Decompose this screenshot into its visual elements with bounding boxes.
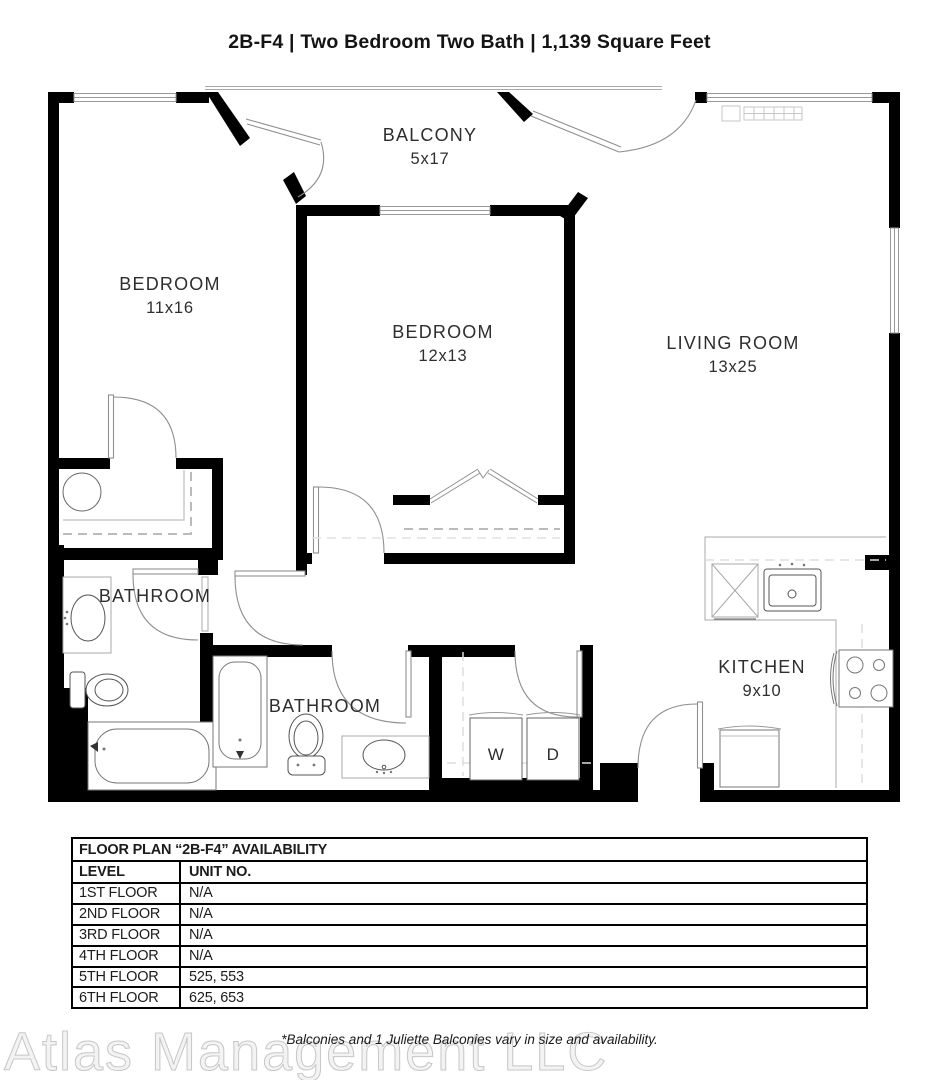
balcony-railing xyxy=(205,87,662,90)
washer-label: W xyxy=(488,745,505,764)
svg-text:BEDROOM: BEDROOM xyxy=(119,274,220,294)
availability-row: 4TH FLOOR N/A xyxy=(73,945,866,966)
svg-text:BALCONY: BALCONY xyxy=(383,125,477,145)
availability-row: 6TH FLOOR 625, 653 xyxy=(73,986,866,1007)
bathroom2-fixtures xyxy=(213,656,429,778)
bedroom2-door xyxy=(314,487,385,553)
window-living-top xyxy=(707,94,872,102)
balcony-door-right xyxy=(531,100,696,152)
entry-door xyxy=(638,702,703,768)
closet-door xyxy=(109,395,177,458)
svg-text:13x25: 13x25 xyxy=(709,358,758,376)
doors xyxy=(109,100,703,768)
window-bedroom1 xyxy=(74,94,176,102)
bathroom1-label: BATHROOM xyxy=(99,586,211,606)
unit-cell: N/A xyxy=(181,948,866,964)
column-header-unit: UNIT NO. xyxy=(181,864,866,880)
living-room-label: LIVING ROOM 13x25 xyxy=(666,333,799,376)
svg-text:KITCHEN: KITCHEN xyxy=(718,657,805,677)
watermark: Atlas Management LLC xyxy=(4,1021,608,1080)
window-living-right xyxy=(891,228,899,333)
availability-row: 5TH FLOOR 525, 553 xyxy=(73,966,866,987)
level-cell: 6TH FLOOR xyxy=(73,988,181,1007)
unit-cell: N/A xyxy=(181,906,866,922)
walk-in-closet xyxy=(63,470,196,534)
laundry-closet: W D xyxy=(447,652,597,780)
level-cell: 4TH FLOOR xyxy=(73,947,181,966)
availability-row: 3RD FLOOR N/A xyxy=(73,924,866,945)
level-cell: 1ST FLOOR xyxy=(73,884,181,903)
hall-door xyxy=(235,571,305,645)
floor-plan-page: 2B-F4 | Two Bedroom Two Bath | 1,139 Squ… xyxy=(0,0,939,1080)
toilet xyxy=(70,672,128,708)
balcony-door-left xyxy=(246,119,324,197)
level-cell: 5TH FLOOR xyxy=(73,968,181,987)
bathroom2-label: BATHROOM xyxy=(269,696,381,716)
refrigerator xyxy=(718,726,781,787)
svg-text:11x16: 11x16 xyxy=(146,299,194,317)
column-header-level: LEVEL xyxy=(73,862,181,882)
windows xyxy=(74,94,899,334)
level-cell: 2ND FLOOR xyxy=(73,905,181,924)
balcony-disclaimer: *Balconies and 1 Juliette Balconies vary… xyxy=(0,1032,939,1047)
stove xyxy=(831,650,894,707)
kitchen-sink xyxy=(764,563,821,611)
laundry-door xyxy=(515,651,582,717)
kitchen-label: KITCHEN 9x10 xyxy=(718,657,805,700)
availability-row: 2ND FLOOR N/A xyxy=(73,903,866,924)
svg-text:12x13: 12x13 xyxy=(419,347,468,365)
svg-text:BATHROOM: BATHROOM xyxy=(269,696,381,716)
toilet xyxy=(288,714,325,775)
svg-text:5x17: 5x17 xyxy=(411,150,450,168)
bedroom2-label: BEDROOM 12x13 xyxy=(392,322,493,365)
svg-text:LIVING ROOM: LIVING ROOM xyxy=(666,333,799,353)
availability-table: FLOOR PLAN “2B-F4” AVAILABILITY LEVEL UN… xyxy=(71,837,868,1009)
bedroom1-label: BEDROOM 11x16 xyxy=(119,274,220,317)
bathtub xyxy=(213,656,267,767)
balcony-label: BALCONY 5x17 xyxy=(383,125,477,168)
svg-text:9x10: 9x10 xyxy=(743,682,782,700)
svg-text:BATHROOM: BATHROOM xyxy=(99,586,211,606)
bedroom2-closet xyxy=(312,469,560,538)
window-bedroom2 xyxy=(380,207,490,215)
dishwasher xyxy=(712,564,758,619)
availability-row: 1ST FLOOR N/A xyxy=(73,882,866,903)
level-cell: 3RD FLOOR xyxy=(73,926,181,945)
unit-cell: N/A xyxy=(181,885,866,901)
dryer-label: D xyxy=(547,745,560,764)
floor-plan-drawing: W D xyxy=(0,0,939,835)
unit-cell: 625, 653 xyxy=(181,990,866,1006)
baseboard-heater xyxy=(722,106,802,121)
unit-cell: 525, 553 xyxy=(181,969,866,985)
availability-table-header: LEVEL UNIT NO. xyxy=(73,860,866,882)
svg-text:BEDROOM: BEDROOM xyxy=(392,322,493,342)
bathtub xyxy=(88,722,216,790)
availability-table-title: FLOOR PLAN “2B-F4” AVAILABILITY xyxy=(73,839,866,860)
unit-cell: N/A xyxy=(181,927,866,943)
bifold-doors xyxy=(430,469,538,503)
